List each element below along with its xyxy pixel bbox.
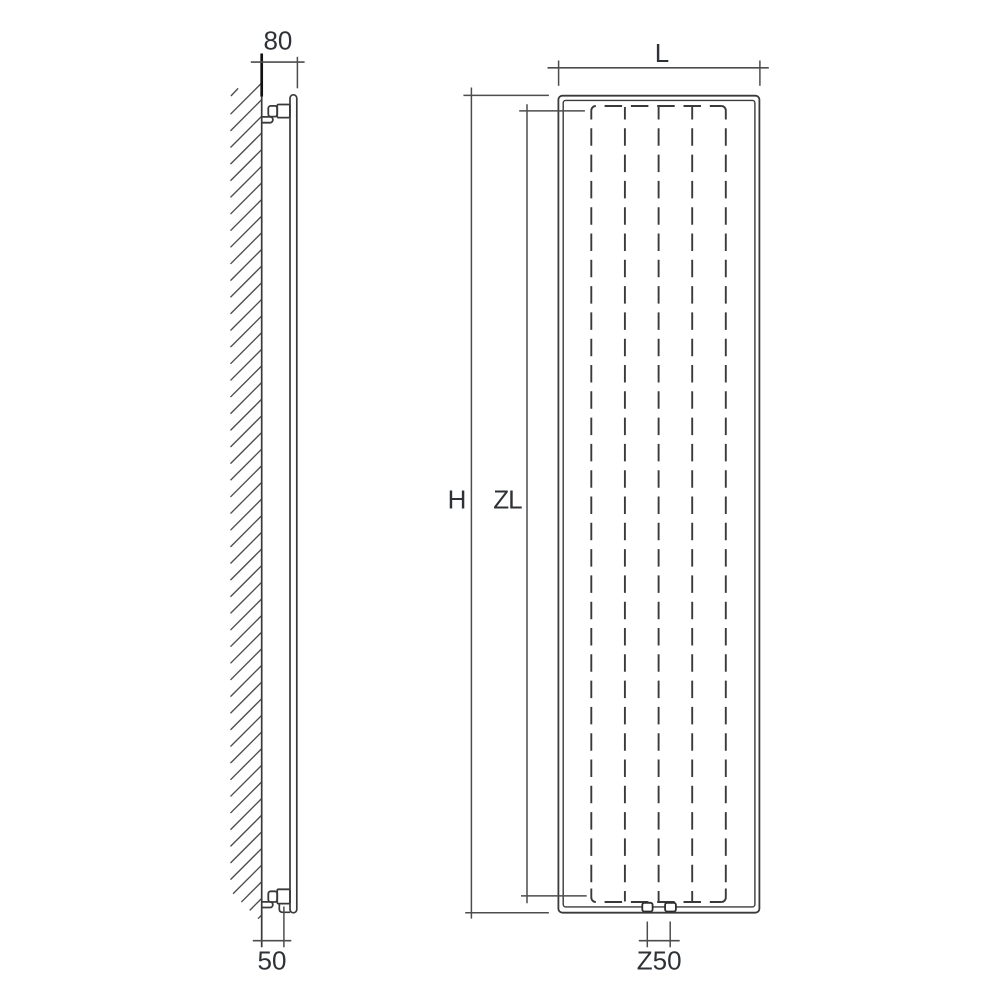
svg-text:Z50: Z50 — [637, 946, 682, 976]
svg-text:80: 80 — [263, 25, 292, 55]
svg-text:ZL: ZL — [493, 485, 522, 515]
svg-text:H: H — [448, 485, 467, 515]
svg-text:L: L — [655, 38, 669, 68]
svg-text:50: 50 — [258, 946, 287, 976]
